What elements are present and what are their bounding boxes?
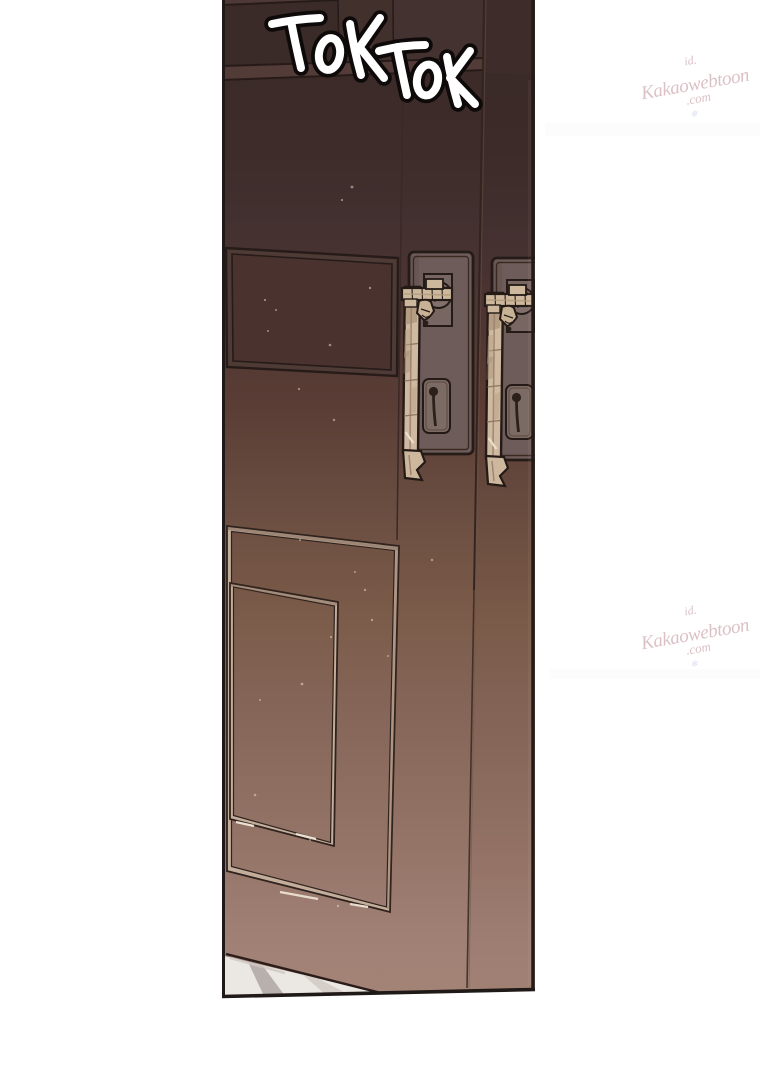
svg-text:id.: id. bbox=[683, 53, 698, 69]
svg-text:id.: id. bbox=[683, 603, 698, 619]
